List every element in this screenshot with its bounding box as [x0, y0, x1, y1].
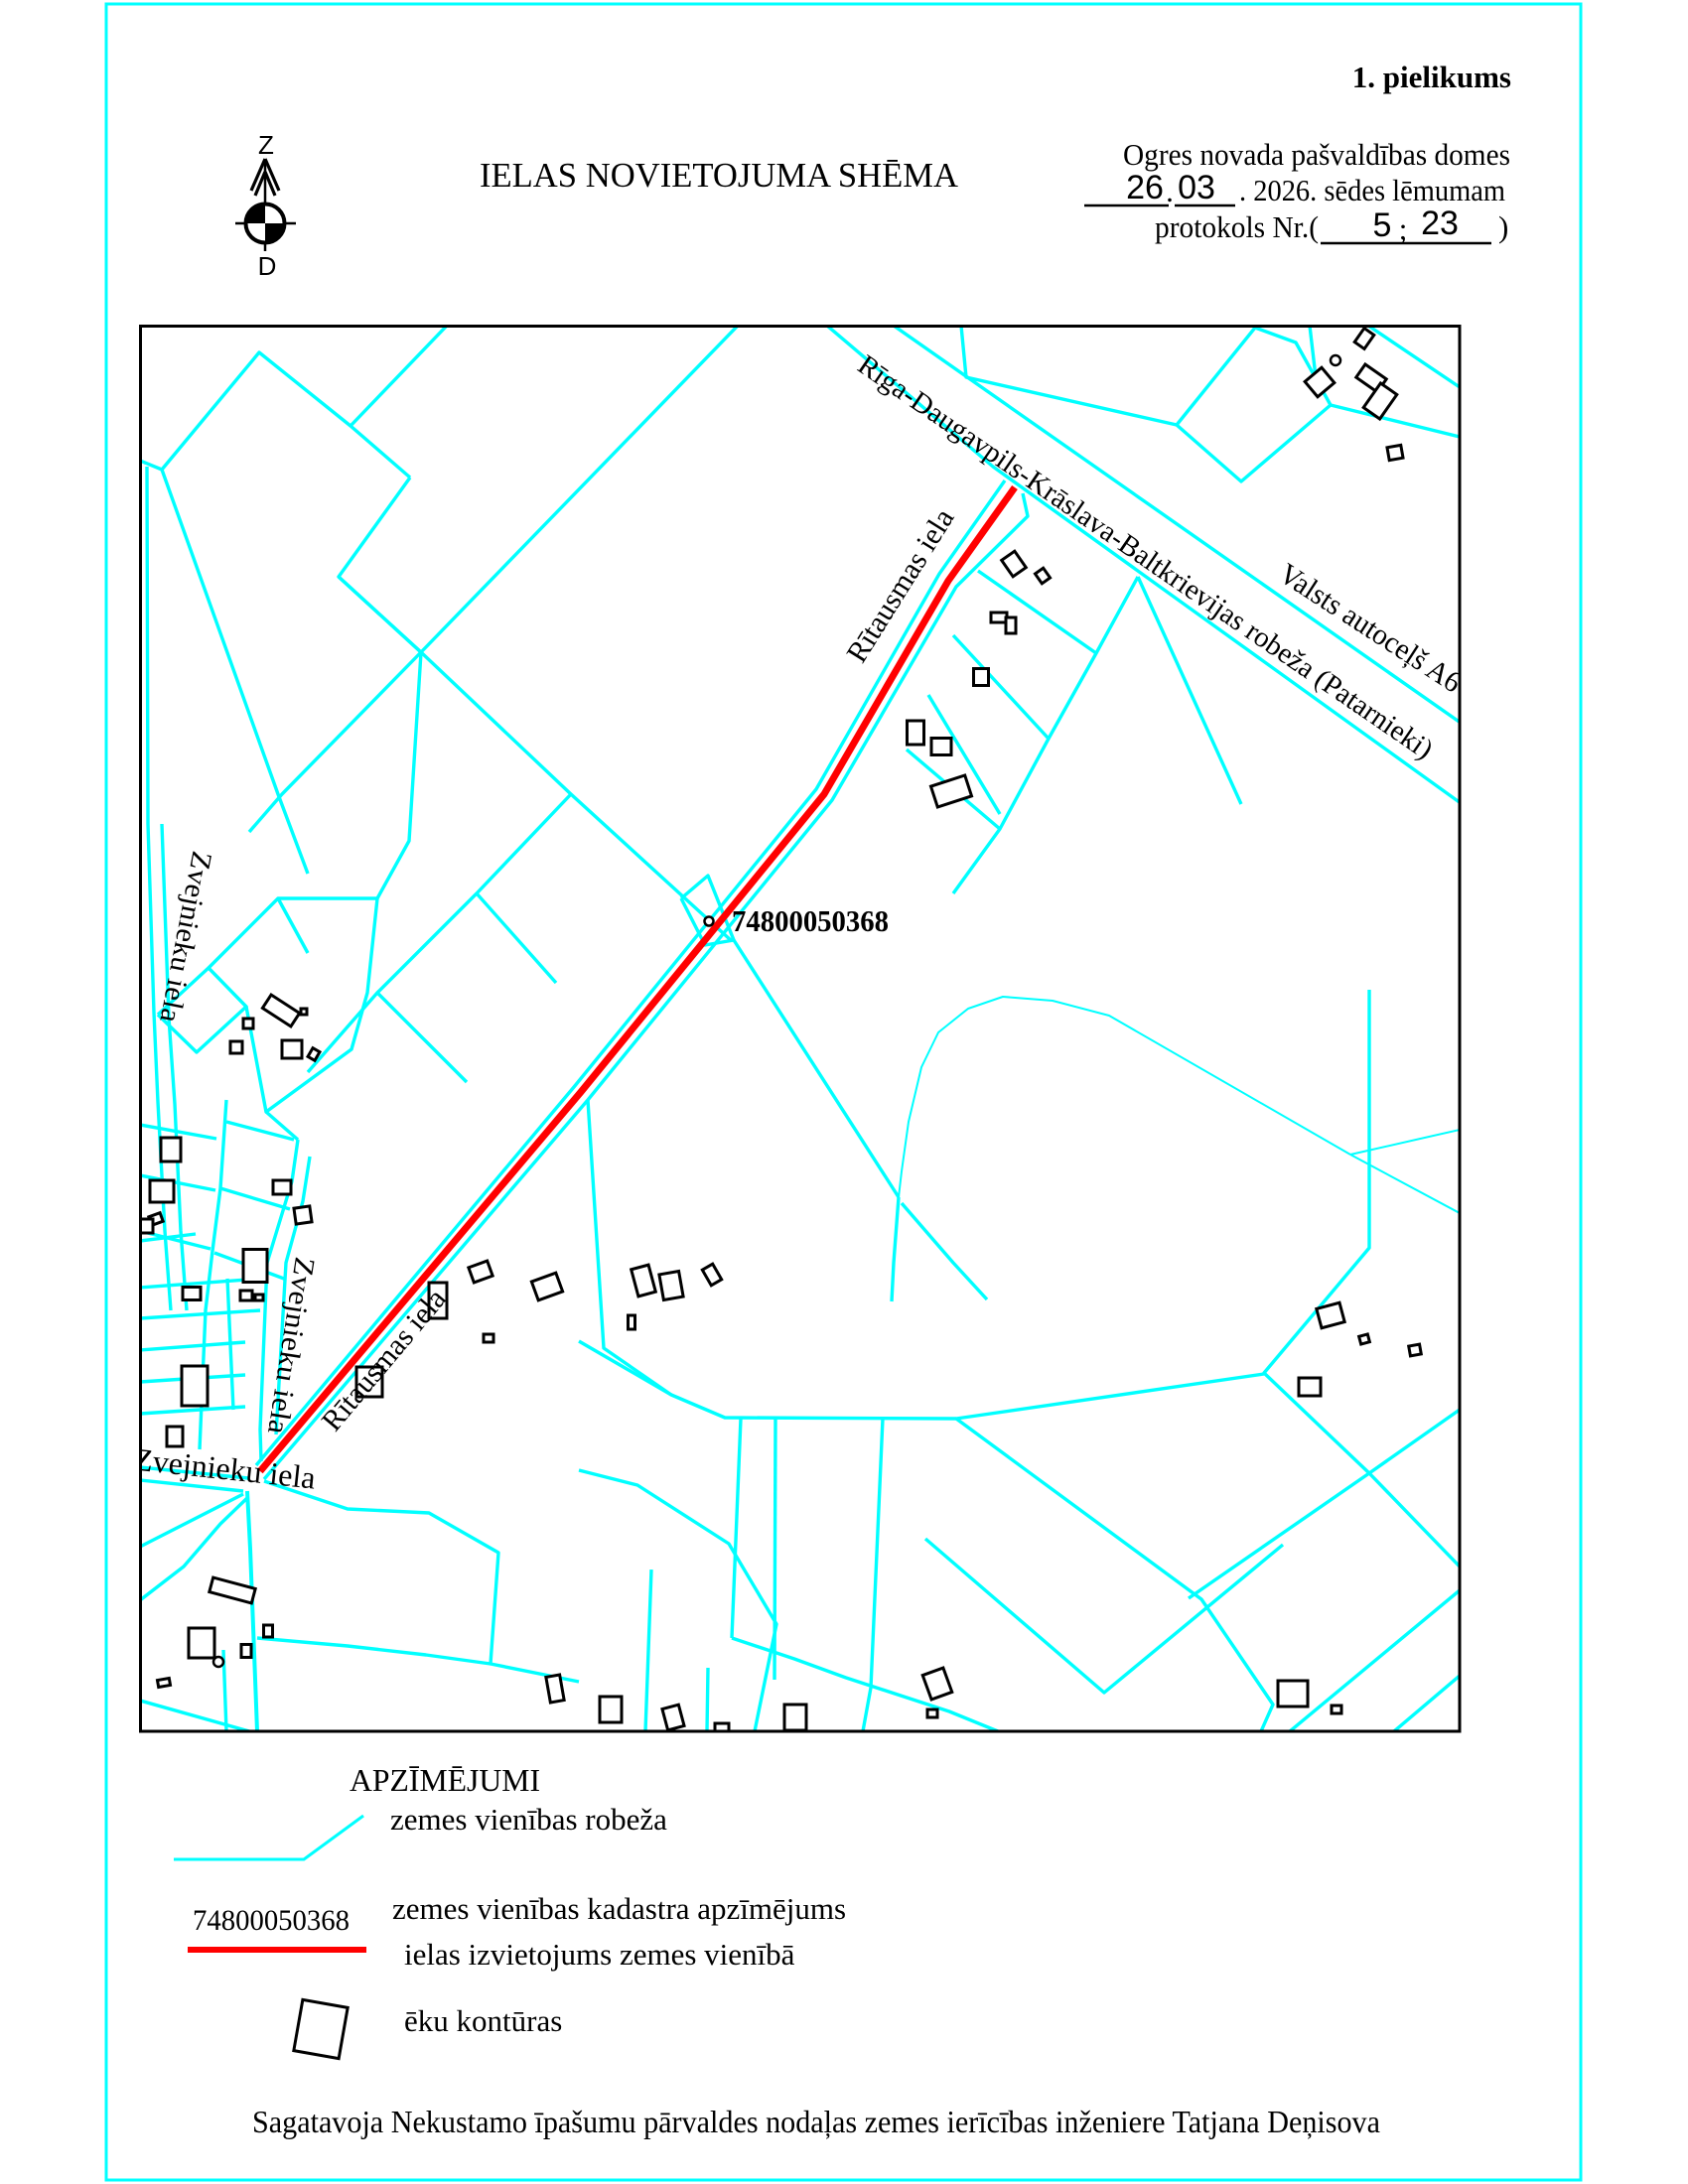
svg-text:.: . [1166, 174, 1174, 208]
svg-text:protokols Nr.(: protokols Nr.( [1155, 209, 1319, 244]
svg-text:zemes vienības robeža: zemes vienības robeža [390, 1802, 667, 1837]
svg-text:APZĪMĒJUMI: APZĪMĒJUMI [350, 1762, 540, 1798]
svg-text:Z: Z [258, 130, 274, 160]
svg-text:D: D [258, 251, 277, 281]
svg-text:Sagatavoja Nekustamo īpašumu p: Sagatavoja Nekustamo īpašumu pārvaldes n… [252, 2104, 1380, 2139]
svg-text:5: 5 [1373, 206, 1392, 244]
svg-text:. 2026. sēdes lēmumam: . 2026. sēdes lēmumam [1239, 173, 1505, 207]
svg-text:ielas izvietojums zemes vienīb: ielas izvietojums zemes vienībā [404, 1937, 795, 1972]
svg-text:1. pielikums: 1. pielikums [1352, 60, 1511, 94]
svg-text:IELAS NOVIETOJUMA SHĒMA: IELAS NOVIETOJUMA SHĒMA [480, 156, 959, 195]
svg-text:74800050368: 74800050368 [732, 903, 889, 938]
svg-text:ēku kontūras: ēku kontūras [404, 2003, 562, 2038]
svg-text:;: ; [1399, 211, 1408, 246]
svg-text:): ) [1498, 209, 1508, 244]
svg-text:zemes vienības kadastra apzīmē: zemes vienības kadastra apzīmējums [392, 1891, 846, 1926]
svg-text:74800050368: 74800050368 [193, 1904, 350, 1937]
svg-text:Ogres novada pašvaldības domes: Ogres novada pašvaldības domes [1123, 137, 1510, 172]
svg-text:26: 26 [1126, 169, 1164, 206]
svg-text:23: 23 [1421, 205, 1459, 242]
svg-text:03: 03 [1178, 169, 1215, 206]
